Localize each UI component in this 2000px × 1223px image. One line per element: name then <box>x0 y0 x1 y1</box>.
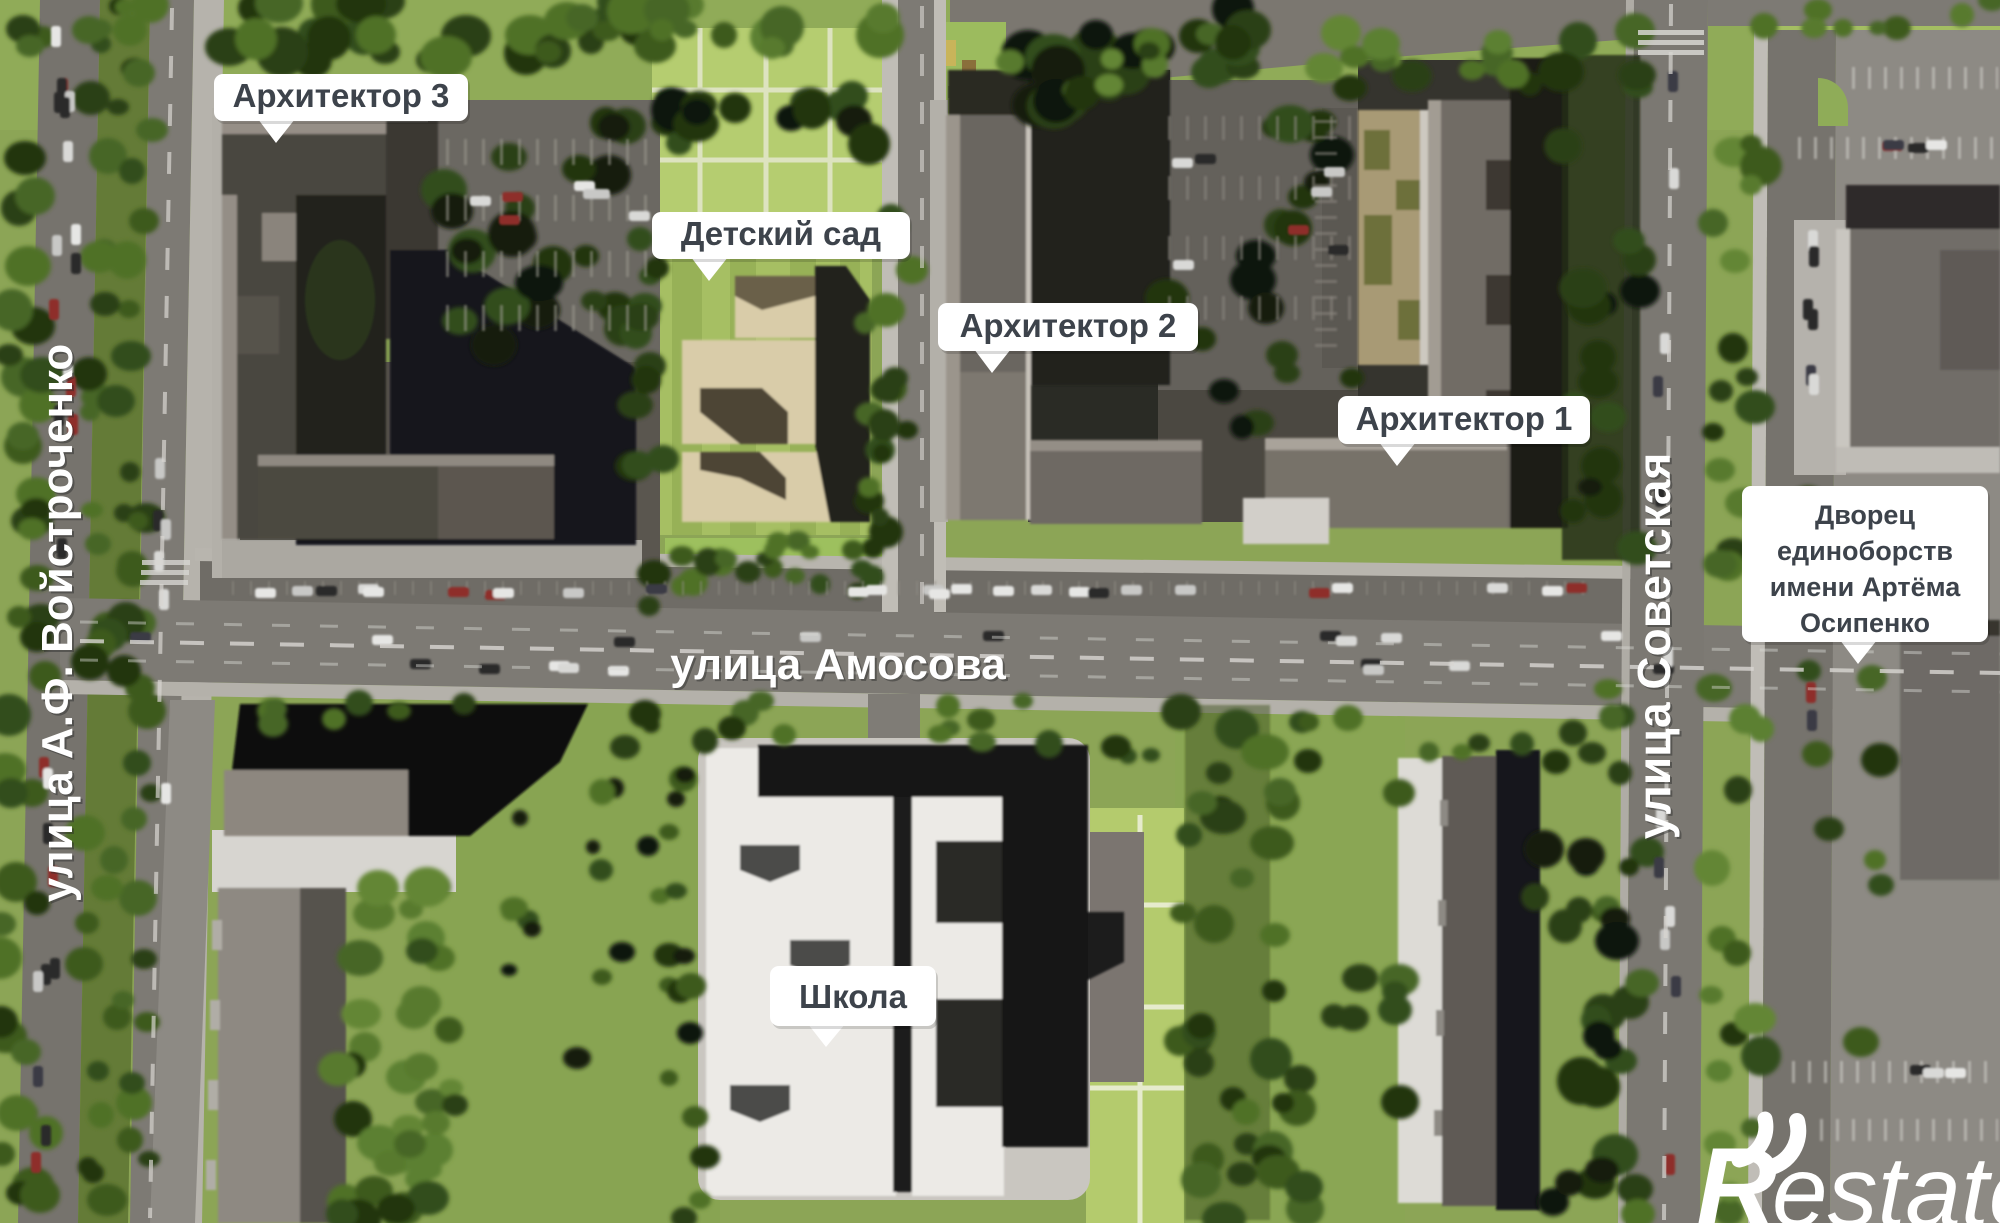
svg-text:Архитектор 3: Архитектор 3 <box>233 77 450 114</box>
svg-text:Дворец: Дворец <box>1815 500 1915 530</box>
svg-text:estate: estate <box>1772 1136 2000 1223</box>
svg-text:Осипенко: Осипенко <box>1800 608 1930 638</box>
svg-text:R: R <box>1696 1125 1777 1223</box>
svg-text:улица А.Ф. Войстроченко: улица А.Ф. Войстроченко <box>33 344 82 902</box>
svg-text:Архитектор 2: Архитектор 2 <box>960 307 1177 344</box>
svg-text:Архитектор 1: Архитектор 1 <box>1356 400 1573 437</box>
svg-text:единоборств: единоборств <box>1777 536 1953 566</box>
svg-text:Школа: Школа <box>799 978 908 1015</box>
svg-text:улица Советская: улица Советская <box>1628 453 1680 840</box>
svg-text:улица Амосова: улица Амосова <box>670 640 1006 689</box>
svg-text:Детский сад: Детский сад <box>681 215 881 252</box>
svg-text:имени Артёма: имени Артёма <box>1770 572 1961 602</box>
